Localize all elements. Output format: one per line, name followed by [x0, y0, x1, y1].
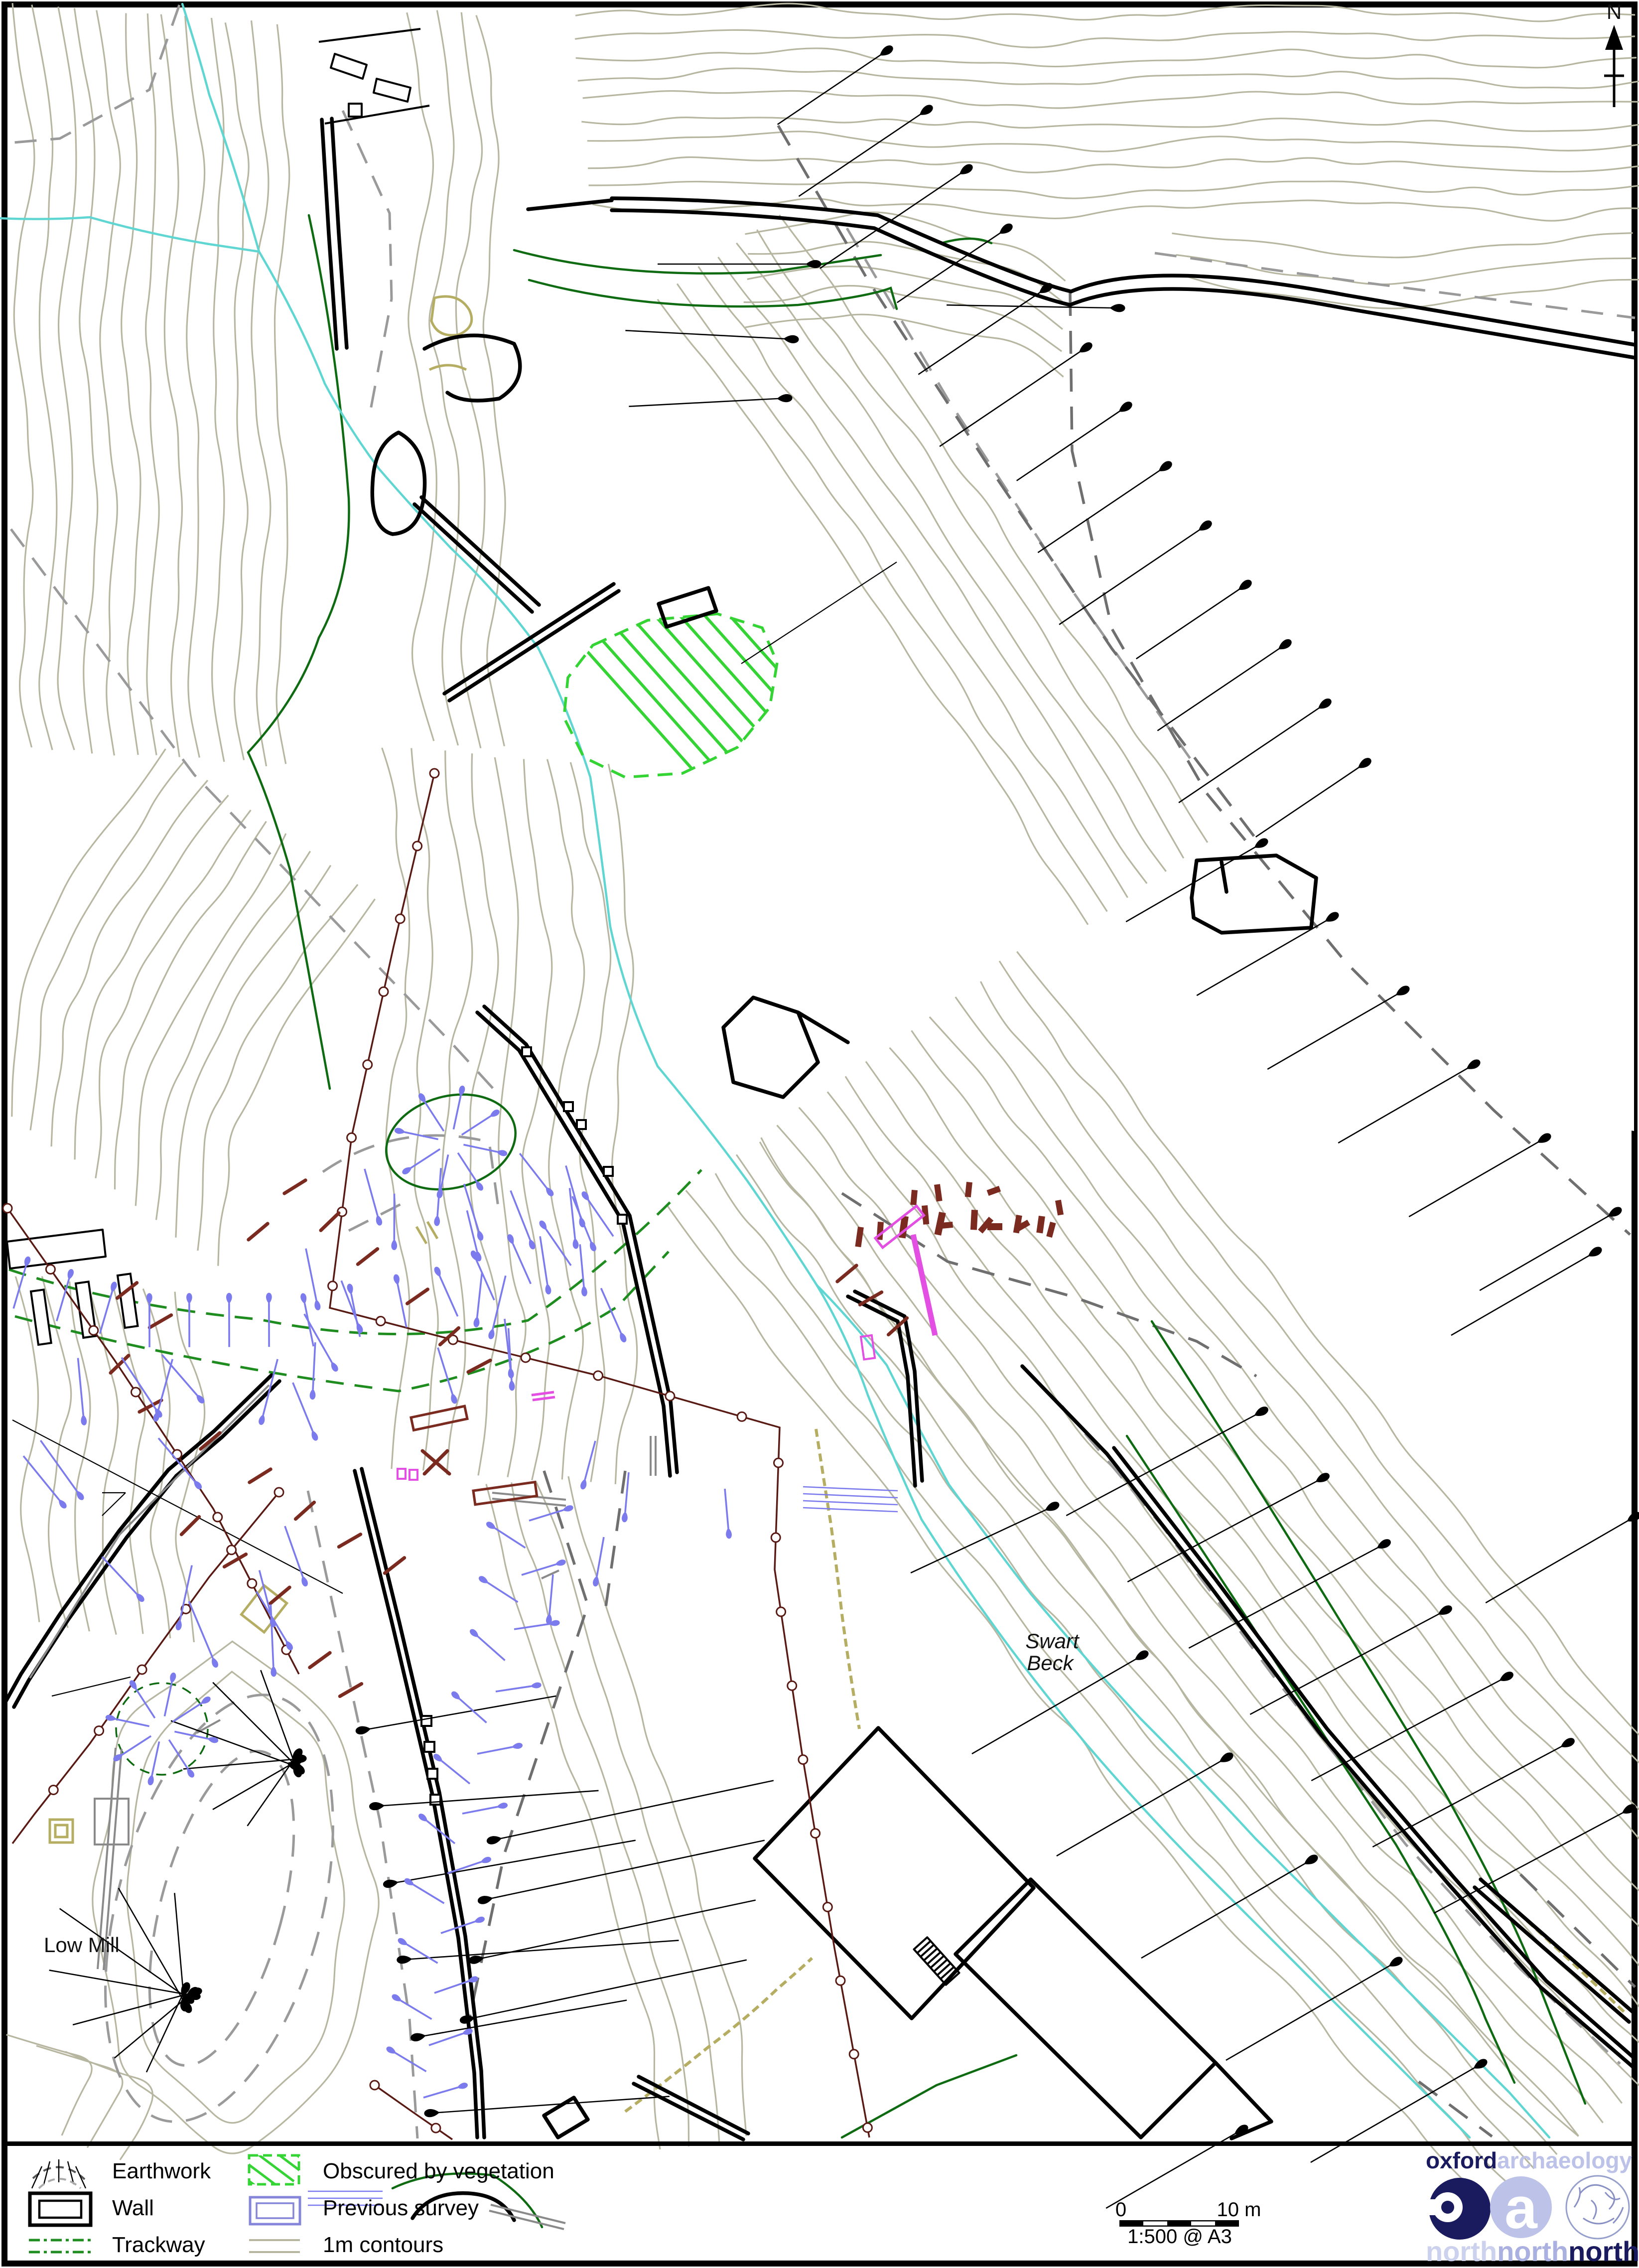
north-label: N [1607, 0, 1622, 23]
map-sheet: Swart Beck Low Mill N Earthwork Wall Tra… [0, 0, 1639, 2268]
logo-top-text: oxfordarchaeology [1426, 2147, 1633, 2173]
low-mill-label: Low Mill [44, 1933, 120, 1957]
survey-map: Swart Beck Low Mill N Earthwork Wall Tra… [0, 0, 1639, 2268]
legend-separator [4, 2141, 1635, 2146]
logo-north3-text: north [1568, 2236, 1639, 2267]
legend-label-previous-survey: Previous survey [323, 2196, 479, 2220]
logo-oxford-text: oxford [1426, 2147, 1497, 2173]
legend-label-wall: Wall [112, 2196, 154, 2220]
legend-label-vegetation: Obscured by vegetation [323, 2159, 554, 2183]
swart-beck-label-line1: Swart [1025, 1629, 1080, 1653]
legend-label-earthwork: Earthwork [112, 2159, 211, 2183]
logo-north1-text: north [1426, 2236, 1497, 2267]
legend-label-trackway: Trackway [112, 2233, 205, 2257]
scale-ratio-label: 1:500 @ A3 [1127, 2226, 1232, 2248]
scale-ten-label: 10 m [1217, 2199, 1261, 2221]
logo-archaeology-text: archaeology [1497, 2147, 1632, 2173]
logo-a-letter: a [1504, 2175, 1538, 2241]
logo-north2-text: north [1497, 2236, 1568, 2267]
scale-zero-label: 0 [1115, 2199, 1126, 2221]
logo-bottom-text: northnorthnorth [1426, 2236, 1639, 2267]
legend-label-contours: 1m contours [323, 2233, 443, 2257]
swart-beck-label-line2: Beck [1027, 1651, 1074, 1675]
